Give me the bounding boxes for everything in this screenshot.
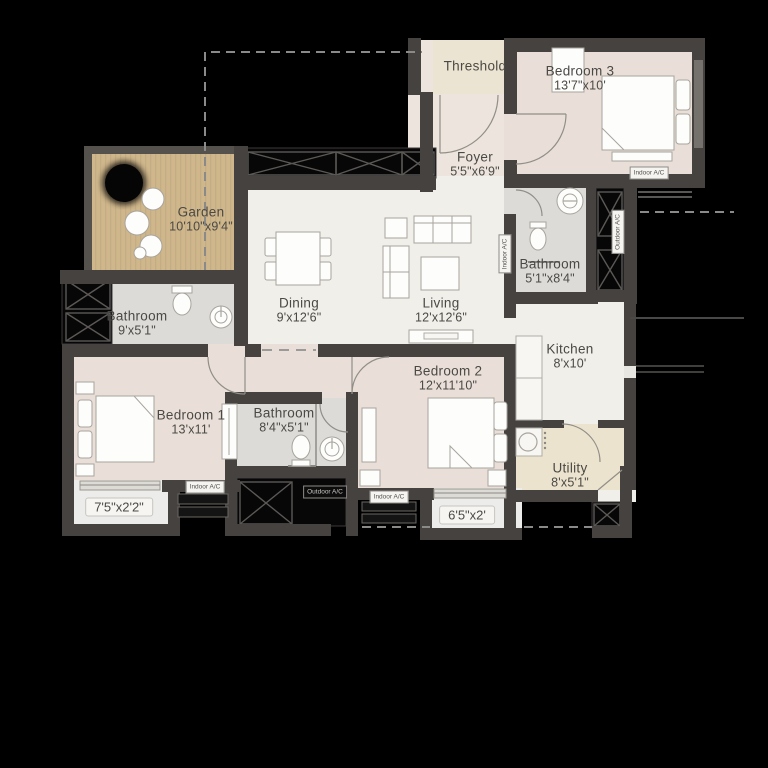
pillow-icon <box>494 434 507 462</box>
dresser-icon <box>488 470 506 486</box>
garden-chair-icon <box>142 188 164 210</box>
indoor-ac-label-bedroom2: Indoor A/C <box>370 491 409 504</box>
room-label-threshold: Threshold <box>444 58 507 73</box>
outdoor-ac-label-bottom-shaft: Outdoor A/C <box>303 486 347 499</box>
pillow-icon <box>676 114 690 144</box>
side-table-icon <box>385 218 407 238</box>
indoor-ac-label-bedroom3: Indoor A/C <box>630 167 669 180</box>
garden-stool-icon <box>134 247 146 259</box>
room-label-foyer: Foyer 5'5"x6'9" <box>450 149 500 178</box>
room-label-dining: Dining 9'x12'6" <box>277 295 322 324</box>
nightstand-icon <box>76 464 94 476</box>
kitchen-window <box>624 366 636 378</box>
toilet-icon <box>172 286 192 293</box>
room-label-kitchen: Kitchen 8'x10' <box>546 341 593 370</box>
kitchen-fixtures <box>516 336 546 456</box>
tree-icon <box>105 164 143 202</box>
indoor-ac-label-living: Indoor A/C <box>499 235 512 274</box>
washing-machine-icon <box>516 428 542 456</box>
toilet-icon <box>292 460 310 466</box>
outdoor-ac-label-right-shaft: Outdoor A/C <box>612 210 625 254</box>
room-label-bathroom-left: Bathroom 9'x5'1" <box>107 308 168 337</box>
shaft-left <box>62 276 112 344</box>
ac-unit-icon <box>178 507 228 517</box>
indoor-ac-label-bedroom1: Indoor A/C <box>186 481 225 494</box>
bedroom3-window <box>694 60 703 148</box>
bench-icon <box>612 152 672 161</box>
desk-icon <box>360 470 380 486</box>
pillow-icon <box>78 400 92 427</box>
ac-unit-icon <box>362 514 416 523</box>
room-label-bedroom1: Bedroom 1 13'x11' <box>157 407 226 436</box>
pillow-icon <box>78 431 92 458</box>
pillow-icon <box>494 402 507 430</box>
room-label-bedroom2: Bedroom 2 12'x11'10" <box>414 363 483 392</box>
room-label-living: Living 12'x12'6" <box>415 295 467 324</box>
room-label-bathroom-top: Bathroom 5'1"x8'4" <box>520 256 581 285</box>
room-label-bath-mid: Bathroom 8'4"x5'1" <box>254 405 315 434</box>
balcony1-dims: 7'5"x2'2" <box>85 498 153 517</box>
tallboy-icon <box>362 408 376 462</box>
balcony2-dims: 6'5"x2' <box>439 506 495 525</box>
garden-table-icon <box>125 211 149 235</box>
ac-unit-icon <box>178 494 228 504</box>
coffee-table-icon <box>421 257 459 290</box>
nightstand-icon <box>76 382 94 394</box>
floor-plan: Garden 10'10"x9'4" Threshold Bedroom 3 1… <box>0 0 768 768</box>
room-label-bedroom3: Bedroom 3 13'7"x10' <box>546 63 615 92</box>
floor-plan-drawing <box>0 0 768 768</box>
toilet-icon <box>530 222 546 228</box>
room-label-utility: Utility 8'x5'1" <box>551 460 589 489</box>
room-label-garden: Garden 10'10"x9'4" <box>169 204 233 233</box>
pillow-icon <box>676 80 690 110</box>
sofa-icon <box>414 216 471 243</box>
tv-icon <box>424 333 458 339</box>
dining-table-icon <box>276 232 320 285</box>
